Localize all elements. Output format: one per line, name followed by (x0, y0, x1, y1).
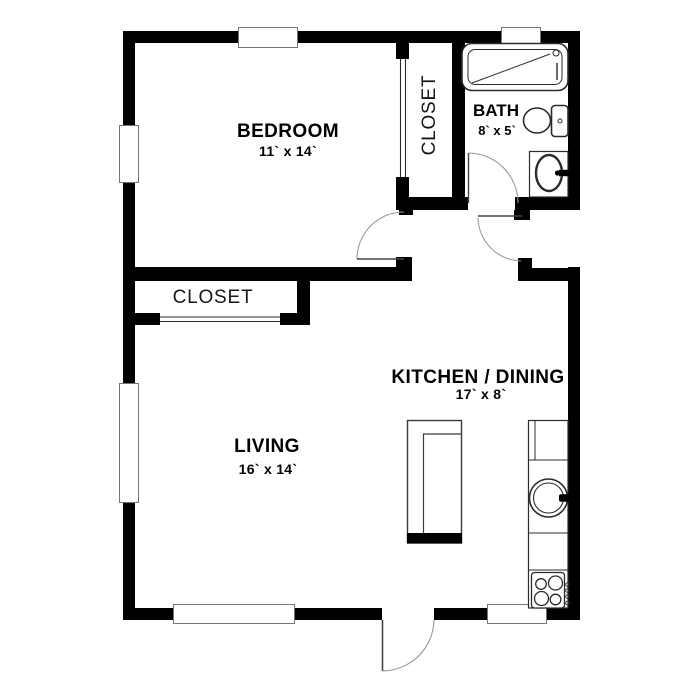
kitchen-dims: 17` x 8` (381, 386, 581, 402)
wall-kitchen-north (518, 268, 580, 281)
living-closet-label: CLOSET (143, 287, 283, 309)
wall-hall-stub (399, 197, 413, 215)
wall-closet2-bottom-left (123, 313, 160, 325)
island-counter-icon (407, 421, 462, 544)
wall-bath-bottom (515, 197, 580, 210)
wall-right-lower (568, 267, 580, 620)
bath-dims: 8` x 5` (447, 123, 547, 138)
entry-door (383, 620, 435, 671)
bath-label: BATH (446, 101, 546, 121)
fixtures-layer (0, 0, 700, 700)
wall-bedroom-door-cap (396, 257, 412, 267)
wall-left (123, 31, 135, 620)
kitchen-sink-icon (530, 479, 571, 517)
window-bedroom-left (119, 125, 139, 183)
window-living-bottom (173, 604, 295, 624)
bath-door (469, 153, 519, 203)
bedroom-closet-label: CLOSET (419, 55, 441, 175)
bathtub-icon (462, 44, 568, 91)
wall-closet2-bottom-right (280, 313, 310, 325)
bedroom-dims: 11` x 14` (188, 143, 388, 159)
wall-bedroom-bottom (123, 267, 412, 281)
window-kitchen-bottom (487, 604, 547, 624)
kitchen-counter-icon (529, 421, 569, 609)
bathroom-sink-icon (530, 152, 570, 198)
sliding-door-living-closet-icon (160, 317, 280, 322)
bedroom-label: BEDROOM (188, 121, 388, 143)
bedroom-door (357, 212, 404, 259)
wall-kitchen-door-cap (518, 258, 532, 268)
stove-icon (532, 573, 570, 609)
window-living-left (119, 383, 139, 503)
floor-plan: BEDROOM 11` x 14` CLOSET BATH 8` x 5` CL… (0, 0, 700, 700)
window-bedroom-top (238, 27, 298, 48)
living-label: LIVING (167, 436, 367, 458)
wall-bedroom-closet-top (396, 43, 409, 59)
window-bath-top (501, 27, 541, 48)
wall-right-upper (568, 31, 580, 207)
sliding-door-bedroom-closet-icon (401, 59, 406, 177)
kitchen-door (478, 216, 522, 261)
wall-hall-door-jamb-top (514, 210, 530, 220)
living-dims: 16` x 14` (168, 461, 368, 477)
